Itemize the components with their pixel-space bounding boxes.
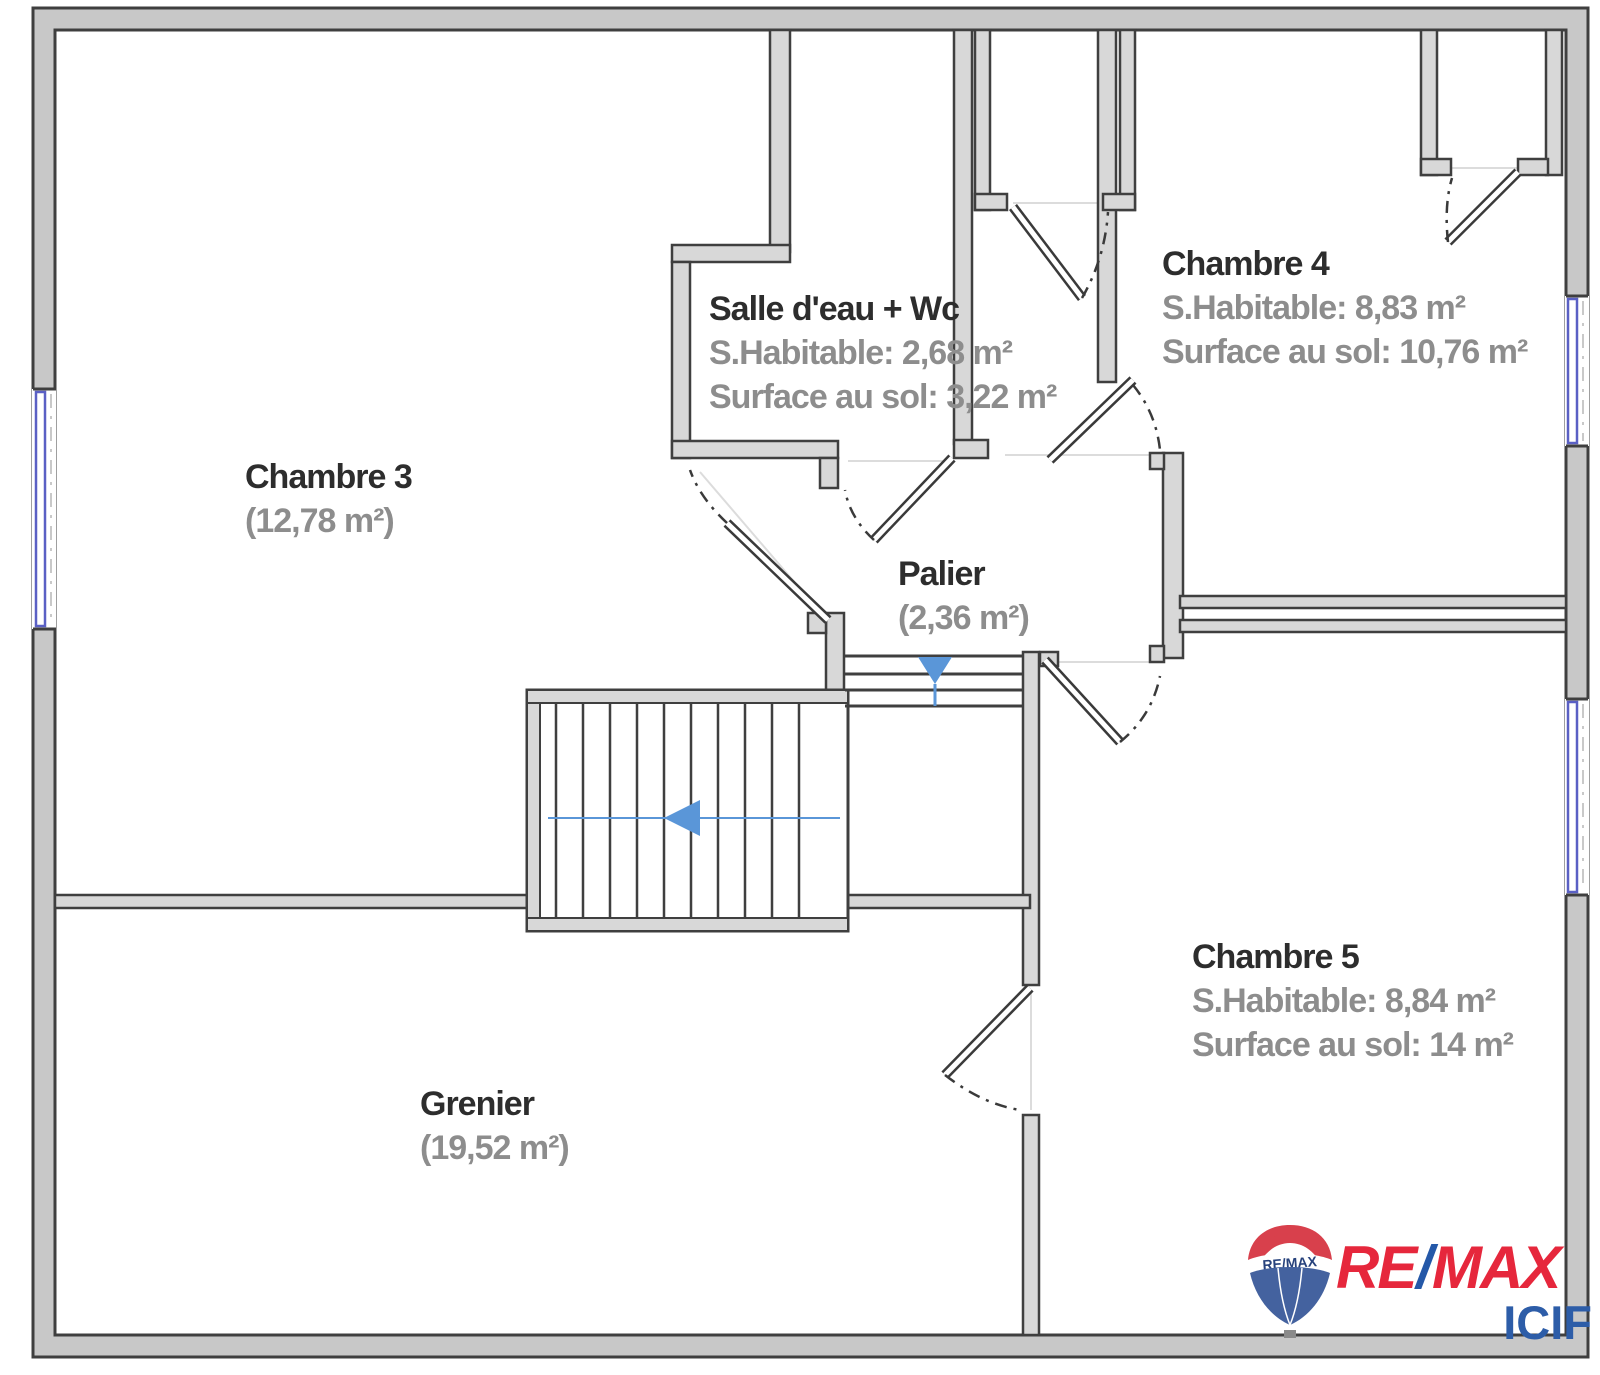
remax-logo: RE/MAX RE/MAX ICIF [1240,1215,1600,1355]
arc-chambre5-palier [1120,676,1160,742]
stair-arrow-down [918,657,952,684]
room-name: Palier [898,552,1029,596]
arc-salle-eau [845,490,874,540]
wall-chambre4-bottom [1180,596,1566,608]
floor-plan-svg [0,0,1600,1375]
wall-alcove1-right-jamb [1103,194,1135,210]
window-right-lower [1565,699,1589,895]
interior-walls [55,30,1566,1335]
exterior-walls [33,8,1588,1357]
brand-wordmark: RE/MAX [1336,1233,1559,1302]
wall-chambre5-top [1180,620,1566,632]
wall-chambre5-west-lower [1023,1115,1039,1335]
wall-salle-eau-right-stub [954,440,988,458]
room-label-palier: Palier (2,36 m²) [898,552,1029,640]
room-name: Chambre 4 [1162,242,1527,286]
arc-chambre5-grenier [945,1075,1020,1110]
room-area: (2,36 m²) [898,596,1029,640]
wall-alcove2-right [1546,30,1562,175]
room-area-sol: Surface au sol: 14 m² [1192,1023,1513,1067]
room-label-chambre4: Chambre 4 S.Habitable: 8,83 m² Surface a… [1162,242,1527,374]
brand-slash: / [1415,1234,1432,1301]
window-left [32,389,56,629]
wall-alcove2-left-jamb [1421,159,1451,175]
wall-alcove2-left [1421,30,1437,175]
floor-plan: Chambre 3 (12,78 m²) Salle d'eau + Wc S.… [0,0,1600,1375]
wall-salle-eau-bottom [672,441,838,458]
wall-palier-east-jamb-bottom [1150,646,1164,662]
room-label-chambre5: Chambre 5 S.Habitable: 8,84 m² Surface a… [1192,935,1513,1067]
wall-salle-eau-left-upper [770,30,790,252]
wall-salle-eau-bottom-jamb [820,458,838,488]
wall-salle-eau-step [672,245,790,262]
wall-palier-east-jamb-top [1150,453,1164,469]
room-name: Grenier [420,1082,569,1126]
wall-grenier-top-right [848,895,1030,908]
wall-chambre5-west-upper [1023,652,1039,985]
room-area-habitable: S.Habitable: 8,83 m² [1162,286,1527,330]
wall-alcove2-right-jamb [1518,159,1548,175]
wall-grenier-top-left [55,895,536,908]
wall-salle-eau-left-lower [672,262,690,458]
room-label-chambre3: Chambre 3 (12,78 m²) [245,455,412,543]
room-area-sol: Surface au sol: 3,22 m² [709,375,1056,419]
room-area-habitable: S.Habitable: 8,84 m² [1192,979,1513,1023]
window-right-upper [1565,296,1589,446]
room-name: Chambre 5 [1192,935,1513,979]
room-label-grenier: Grenier (19,52 m²) [420,1082,569,1170]
agency-name: ICIF [1336,1295,1592,1350]
room-area: (12,78 m²) [245,499,412,543]
room-name: Chambre 3 [245,455,412,499]
room-name: Salle d'eau + Wc [709,287,1056,331]
room-area-sol: Surface au sol: 10,76 m² [1162,330,1527,374]
wall-alcove1-left [975,30,990,210]
wall-alcove1-left-jamb [975,194,1007,210]
arc-chambre4 [1133,385,1160,450]
room-area-habitable: S.Habitable: 2,68 m² [709,331,1056,375]
room-area: (19,52 m²) [420,1126,569,1170]
room-label-salle-eau: Salle d'eau + Wc S.Habitable: 2,68 m² Su… [709,287,1056,419]
wall-alcove1-right [1120,30,1135,210]
balloon-icon: RE/MAX [1240,1215,1340,1340]
stairs [527,656,1023,931]
